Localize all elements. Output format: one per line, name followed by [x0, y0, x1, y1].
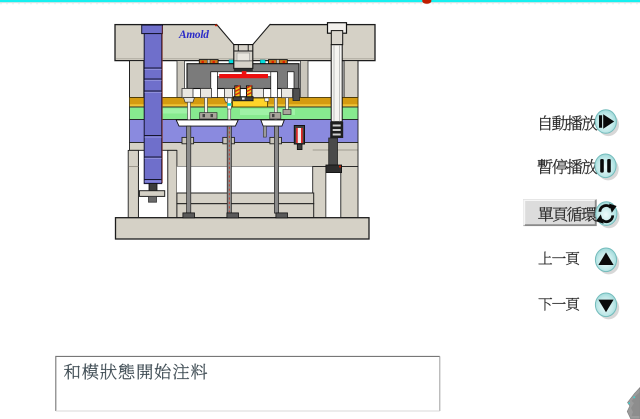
svg-text:Amold: Amold	[178, 29, 209, 41]
